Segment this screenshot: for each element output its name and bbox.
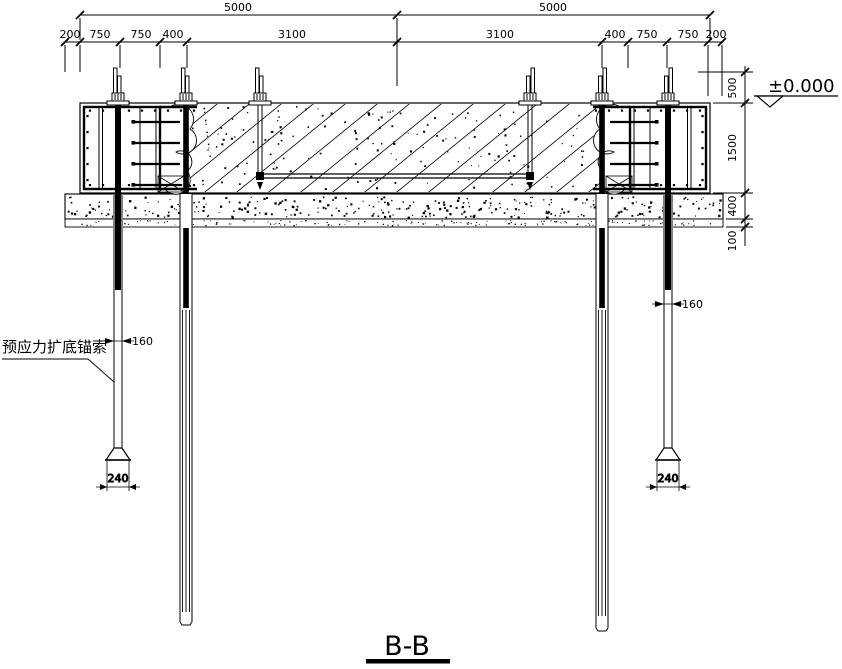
- stipple-dot: [474, 136, 476, 138]
- stipple-dot: [577, 224, 578, 225]
- stipple-dot: [218, 134, 219, 135]
- stipple-dot: [204, 112, 205, 113]
- stipple-dot: [611, 197, 613, 199]
- stipple-dot: [420, 161, 422, 163]
- stipple-dot: [205, 124, 206, 125]
- stipple-dot: [532, 197, 533, 198]
- stipple-dot: [438, 225, 439, 226]
- stipple-dot: [675, 224, 676, 225]
- stipple-dot: [290, 214, 291, 215]
- stipple-dot: [305, 109, 307, 111]
- section-title: B-B: [366, 631, 450, 664]
- stipple-dot: [338, 210, 340, 212]
- stipple-dot: [164, 216, 165, 217]
- stipple-dot: [701, 199, 702, 200]
- stipple-dot: [478, 165, 479, 166]
- stipple-dot: [514, 215, 515, 216]
- stipple-dot: [679, 206, 681, 208]
- stipple-dot: [71, 202, 73, 204]
- stipple-dot: [147, 220, 148, 221]
- stipple-dot: [504, 212, 506, 214]
- stipple-dot: [498, 155, 500, 157]
- tendon: [115, 103, 121, 290]
- stipple-dot: [513, 155, 515, 157]
- stipple-dot: [527, 189, 528, 190]
- stipple-dot: [378, 119, 380, 121]
- stipple-dot: [644, 221, 645, 222]
- stipple-dot: [508, 160, 510, 162]
- stipple-dot: [318, 212, 319, 213]
- stipple-dot: [286, 216, 287, 217]
- stipple-dot: [381, 117, 383, 119]
- stipple-dot: [488, 153, 490, 155]
- stipple-dot: [511, 184, 513, 186]
- stipple-dot: [270, 224, 271, 225]
- stipple-dot: [243, 106, 245, 108]
- stipple-dot: [89, 204, 91, 206]
- stipple-dot: [643, 215, 644, 216]
- stipple-dot: [524, 202, 525, 203]
- stipple-dot: [274, 224, 275, 225]
- base-dim-right: 240: [646, 461, 690, 491]
- anchor-head: [249, 68, 271, 105]
- dim-750-r2: 750: [678, 28, 699, 41]
- stipple-dot: [399, 208, 401, 210]
- stipple-dot: [469, 147, 470, 148]
- stipple-dot: [383, 224, 384, 225]
- stipple-dot: [468, 222, 469, 223]
- stipple-dot: [331, 215, 333, 217]
- stipple-dot: [364, 221, 365, 222]
- stipple-dot: [495, 208, 497, 210]
- stipple-dot: [177, 204, 178, 205]
- stipple-dot: [372, 143, 373, 144]
- stipple-dot: [279, 202, 281, 204]
- stipple-dot: [203, 210, 205, 212]
- anchor-head: [657, 68, 679, 105]
- stipple-dot: [377, 149, 379, 151]
- stipple-dot: [369, 205, 370, 206]
- stipple-dot: [274, 168, 275, 169]
- stipple-dot: [718, 215, 720, 217]
- stipple-dot: [463, 203, 464, 204]
- stipple-dot: [615, 216, 617, 218]
- stipple-dot: [467, 223, 468, 224]
- stipple-dot: [614, 222, 615, 223]
- tendon: [599, 103, 605, 193]
- stipple-dot: [358, 223, 359, 224]
- stipple-dot: [591, 221, 592, 222]
- stipple-dot: [308, 214, 310, 216]
- stipple-dot: [648, 206, 650, 208]
- stipple-dot: [705, 208, 707, 210]
- stipple-dot: [451, 221, 452, 222]
- stipple-dot: [148, 221, 149, 222]
- stipple-dot: [461, 213, 463, 215]
- stipple-dot: [458, 197, 460, 199]
- stipple-dot: [457, 200, 459, 202]
- stipple-dot: [280, 225, 281, 226]
- section-drawing: 5000 5000 200 750 750 400 3100 3100 400 …: [0, 0, 842, 669]
- stipple-dot: [476, 222, 477, 223]
- drawing-canvas: 5000 5000 200 750 750 400 3100 3100 400 …: [0, 0, 842, 669]
- stipple-dot: [247, 112, 248, 113]
- stipple-dot: [226, 133, 228, 135]
- dim-400-v: 400: [726, 196, 739, 217]
- stipple-dot: [149, 211, 150, 212]
- stipple-dot: [642, 225, 643, 226]
- stipple-dot: [96, 222, 97, 223]
- stipple-dot: [593, 225, 594, 226]
- stipple-dot: [443, 202, 445, 204]
- stipple-dot: [203, 184, 204, 185]
- stipple-dot: [446, 217, 448, 219]
- stipple-dot: [636, 202, 637, 203]
- stipple-dot: [506, 150, 508, 152]
- stipple-dot: [257, 201, 258, 202]
- stipple-dot: [229, 120, 230, 121]
- stipple-dot: [578, 115, 580, 117]
- stipple-dot: [375, 179, 377, 181]
- stipple-dot: [388, 211, 390, 213]
- stipple-dot: [406, 220, 407, 221]
- stipple-dot: [514, 199, 516, 201]
- stipple-dot: [277, 120, 278, 121]
- stipple-dot: [622, 222, 623, 223]
- stipple-dot: [510, 172, 512, 174]
- stipple-dot: [243, 220, 244, 221]
- stipple-dot: [617, 222, 618, 223]
- stipple-dot: [109, 209, 110, 210]
- stipple-dot: [158, 222, 159, 223]
- stipple-dot: [205, 120, 207, 122]
- stipple-dot: [293, 225, 294, 226]
- stipple-dot: [550, 213, 552, 215]
- stipple-dot: [588, 223, 589, 224]
- stipple-dot: [98, 221, 99, 222]
- stipple-dot: [381, 210, 382, 211]
- stipple-dot: [290, 170, 292, 172]
- stipple-dot: [150, 220, 151, 221]
- stipple-dot: [224, 167, 226, 169]
- stipple-dot: [514, 124, 515, 125]
- stipple-dot: [106, 215, 107, 216]
- stipple-dot: [618, 212, 620, 214]
- stipple-dot: [124, 223, 125, 224]
- stipple-dot: [355, 211, 356, 212]
- bell-icon: [656, 448, 680, 460]
- stipple-dot: [624, 207, 626, 209]
- stipple-dot: [259, 212, 260, 213]
- stipple-dot: [208, 144, 210, 146]
- stipple-dot: [198, 201, 200, 203]
- stipple-dot: [478, 209, 480, 211]
- stipple-dot: [372, 215, 374, 217]
- stipple-dot: [280, 220, 281, 221]
- stipple-dot: [216, 222, 217, 223]
- stipple-dot: [565, 221, 566, 222]
- stipple-dot: [467, 112, 469, 114]
- stipple-dot: [107, 201, 109, 203]
- stipple-dot: [239, 183, 241, 185]
- stipple-dot: [393, 141, 394, 142]
- stipple-dot: [518, 209, 519, 210]
- stipple-dot: [393, 221, 394, 222]
- stipple-dot: [320, 153, 322, 155]
- stipple-dot: [387, 112, 388, 113]
- stipple-dot: [471, 223, 472, 224]
- stipple-dot: [537, 225, 538, 226]
- stipple-dot: [171, 206, 173, 208]
- stipple-dot: [560, 213, 561, 214]
- stipple-dot: [688, 223, 689, 224]
- stipple-dot: [68, 211, 70, 213]
- stipple-dot: [639, 213, 641, 215]
- stipple-dot: [85, 215, 87, 217]
- stipple-dot: [637, 215, 639, 217]
- stipple-dot: [323, 197, 325, 199]
- stipple-dot: [216, 146, 218, 148]
- stipple-dot: [693, 225, 694, 226]
- stipple-dot: [203, 197, 205, 199]
- stipple-dot: [425, 223, 426, 224]
- stipple-dot: [89, 211, 91, 213]
- stipple-dot: [332, 199, 334, 201]
- dim-3100-r: 3100: [486, 28, 514, 41]
- stipple-dot: [546, 217, 548, 219]
- dim-5000-right: 5000: [539, 1, 567, 14]
- stipple-dot: [698, 208, 700, 210]
- stipple-dot: [221, 182, 223, 184]
- stipple-dot: [465, 216, 467, 218]
- stipple-dot: [265, 213, 267, 215]
- stipple-dot: [577, 128, 578, 129]
- stipple-dot: [74, 213, 76, 215]
- stipple-dot: [355, 163, 357, 165]
- dia-dim-left: 160: [102, 335, 153, 348]
- stipple-dot: [487, 170, 488, 171]
- stipple-dot: [564, 161, 565, 162]
- stipple-dot: [506, 221, 507, 222]
- stipple-dot: [254, 222, 255, 223]
- stipple-dot: [487, 221, 488, 222]
- stipple-dot: [530, 202, 531, 203]
- base-dim-left: 240: [96, 461, 140, 491]
- stipple-dot: [561, 222, 562, 223]
- stipple-dot: [253, 141, 255, 143]
- stipple-dot: [719, 203, 720, 204]
- stipple-dot: [467, 198, 469, 200]
- stipple-dot: [593, 204, 595, 206]
- stipple-dot: [547, 177, 548, 178]
- stipple-dot: [335, 197, 337, 199]
- stipple-dot: [241, 209, 243, 211]
- stipple-dot: [593, 200, 594, 201]
- dim-200-l: 200: [60, 28, 81, 41]
- stipple-dot: [355, 132, 357, 134]
- stipple-dot: [452, 113, 454, 115]
- stipple-dot: [394, 143, 396, 145]
- stipple-dot: [510, 220, 511, 221]
- stipple-dot: [164, 222, 165, 223]
- stipple-dot: [293, 136, 294, 137]
- stipple-dot: [546, 211, 548, 213]
- stipple-dot: [649, 211, 650, 212]
- stipple-dot: [463, 212, 464, 213]
- dim-row-top: [76, 11, 714, 86]
- stipple-dot: [194, 211, 195, 212]
- stipple-dot: [363, 201, 364, 202]
- stipple-dot: [481, 156, 482, 157]
- stipple-dot: [328, 224, 329, 225]
- stipple-dot: [221, 127, 223, 129]
- anchor-cable-callout: 预应力扩底锚索: [2, 338, 114, 382]
- stipple-dot: [474, 130, 475, 131]
- stipple-dot: [206, 204, 207, 205]
- stipple-dot: [395, 182, 397, 184]
- stipple-dot: [268, 139, 269, 140]
- stipple-dot: [608, 221, 609, 222]
- stipple-dot: [411, 222, 412, 223]
- stipple-dot: [91, 208, 92, 209]
- stipple-dot: [683, 198, 685, 200]
- stipple-dot: [713, 203, 715, 205]
- stipple-dot: [318, 208, 319, 209]
- stipple-dot: [693, 220, 694, 221]
- stipple-dot: [280, 126, 282, 128]
- stipple-dot: [325, 208, 327, 210]
- dia-right-label: 160: [682, 298, 703, 311]
- stipple-dot: [423, 131, 425, 133]
- level-triangle-icon: [757, 96, 783, 107]
- stipple-dot: [232, 216, 234, 218]
- stipple-dot: [265, 139, 267, 141]
- stipple-dot: [356, 148, 358, 150]
- stipple-dot: [368, 112, 370, 114]
- stipple-dot: [324, 126, 326, 128]
- stipple-dot: [515, 224, 516, 225]
- stipple-dot: [274, 202, 276, 204]
- stipple-dot: [125, 210, 126, 211]
- anchor-cable-label: 预应力扩底锚索: [2, 338, 107, 356]
- stipple-dot: [101, 213, 103, 215]
- stipple-dot: [692, 203, 694, 205]
- stipple-dot: [176, 209, 177, 210]
- dim-row-second: [61, 38, 726, 96]
- stipple-dot: [206, 132, 208, 134]
- stipple-dot: [274, 162, 275, 163]
- level-marker: ±0.000: [754, 76, 838, 107]
- stipple-dot: [203, 206, 205, 208]
- stipple-dot: [435, 200, 437, 202]
- stipple-dot: [390, 111, 391, 112]
- stipple-dot: [660, 223, 661, 224]
- stipple-dot: [568, 211, 570, 213]
- stipple-dot: [585, 203, 586, 204]
- stipple-dot: [406, 208, 408, 210]
- stipple-dot: [678, 215, 680, 217]
- stipple-dot: [327, 204, 329, 206]
- stipple-dot: [576, 198, 578, 200]
- stipple-dot: [473, 216, 475, 218]
- stipple-dot: [147, 202, 148, 203]
- stipple-dot: [249, 201, 251, 203]
- stipple-dot: [485, 200, 487, 202]
- stipple-dot: [396, 159, 397, 160]
- stipple-dot: [491, 212, 493, 214]
- stipple-dot: [378, 201, 379, 202]
- stipple-dot: [499, 203, 501, 205]
- stipple-dot: [582, 202, 583, 203]
- stipple-dot: [649, 221, 650, 222]
- stipple-dot: [417, 134, 418, 135]
- stipple-dot: [511, 216, 513, 218]
- stipple-dot: [346, 220, 347, 221]
- stipple-dot: [98, 206, 100, 208]
- tendon: [599, 228, 605, 308]
- dia-left-label: 160: [132, 335, 153, 348]
- stipple-dot: [507, 209, 508, 210]
- stipple-dot: [279, 223, 280, 224]
- stipple-dot: [145, 214, 146, 215]
- stipple-dot: [376, 187, 378, 189]
- stipple-dot: [381, 143, 383, 145]
- stipple-dot: [391, 200, 392, 201]
- stipple-dot: [632, 202, 634, 204]
- stipple-dot: [367, 138, 369, 140]
- stipple-dot: [582, 156, 584, 158]
- stipple-dot: [383, 196, 385, 198]
- stipple-dot: [254, 214, 256, 216]
- stipple-dot: [270, 154, 272, 156]
- stipple-dot: [490, 205, 491, 206]
- stipple-dot: [69, 197, 70, 198]
- stipple-dot: [86, 225, 87, 226]
- stipple-dot: [479, 224, 480, 225]
- stipple-dot: [145, 197, 147, 199]
- stipple-dot: [292, 206, 294, 208]
- stipple-dot: [284, 224, 285, 225]
- stipple-dot: [134, 207, 136, 209]
- stipple-dot: [305, 220, 306, 221]
- stipple-dot: [157, 215, 159, 217]
- footing: [65, 194, 723, 227]
- stipple-dot: [393, 214, 394, 215]
- stipple-dot: [471, 165, 472, 166]
- stipple-dot: [578, 216, 579, 217]
- stipple-dot: [422, 216, 423, 217]
- stipple-dot: [531, 205, 533, 207]
- stipple-dot: [297, 206, 299, 208]
- dim-100-v: 100: [726, 231, 739, 252]
- slab: [40, 100, 766, 196]
- stipple-dot: [458, 161, 459, 162]
- stipple-dot: [462, 206, 464, 208]
- stipple-dot: [164, 223, 165, 224]
- stipple-dot: [81, 224, 82, 225]
- stipple-dot: [231, 138, 233, 140]
- dim-200-r: 200: [706, 28, 727, 41]
- dim-750-r1: 750: [637, 28, 658, 41]
- stipple-dot: [294, 214, 296, 216]
- stipple-dot: [427, 183, 428, 184]
- stipple-dot: [95, 210, 96, 211]
- stipple-dot: [344, 215, 346, 217]
- stipple-dot: [434, 117, 436, 119]
- stipple-dot: [268, 222, 269, 223]
- stipple-dot: [442, 220, 443, 221]
- stipple-dot: [357, 181, 359, 183]
